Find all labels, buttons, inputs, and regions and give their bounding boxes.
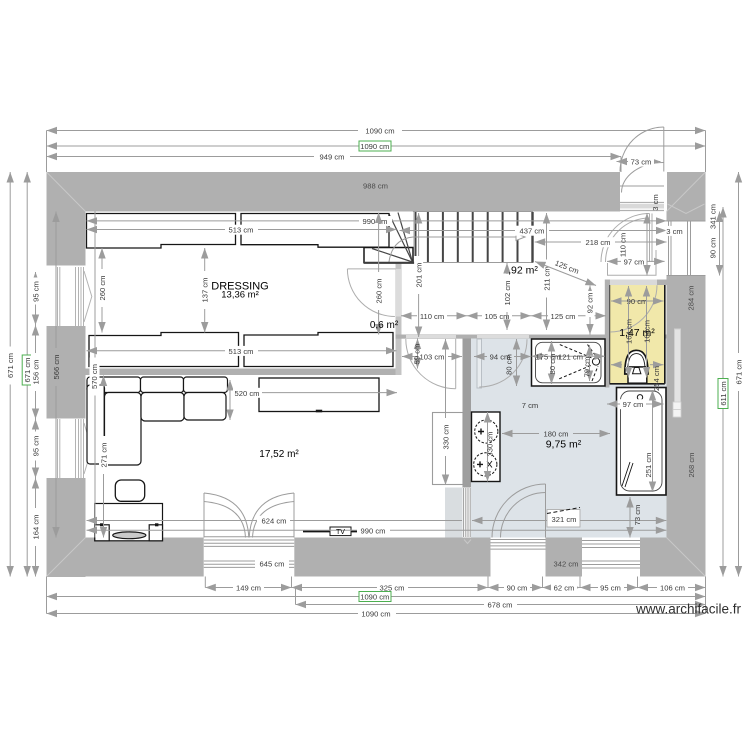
svg-text:TV: TV xyxy=(336,529,345,536)
svg-text:268 cm: 268 cm xyxy=(687,453,696,478)
svg-text:671 cm: 671 cm xyxy=(735,360,744,385)
svg-text:988 cm: 988 cm xyxy=(363,182,388,191)
svg-text:284 cm: 284 cm xyxy=(687,286,696,311)
svg-text:3 cm: 3 cm xyxy=(666,227,682,236)
svg-text:513 cm: 513 cm xyxy=(229,347,254,356)
svg-text:271 cm: 271 cm xyxy=(100,443,109,468)
svg-text:251 cm: 251 cm xyxy=(644,453,653,478)
svg-text:437 cm: 437 cm xyxy=(520,227,545,236)
svg-text:156 cm: 156 cm xyxy=(32,360,41,385)
svg-text:0,6 m²: 0,6 m² xyxy=(370,320,399,331)
svg-text:330 cm: 330 cm xyxy=(486,432,495,457)
svg-text:949 cm: 949 cm xyxy=(320,153,345,162)
svg-text:260 cm: 260 cm xyxy=(375,279,384,304)
svg-text:17,52 m²: 17,52 m² xyxy=(259,449,299,460)
svg-text:95 cm: 95 cm xyxy=(32,281,41,302)
svg-text:102 cm: 102 cm xyxy=(503,281,512,306)
svg-text:1090 cm: 1090 cm xyxy=(360,142,389,151)
svg-text:97 cm: 97 cm xyxy=(623,400,644,409)
svg-text:7 cm: 7 cm xyxy=(522,401,538,410)
svg-text:260 cm: 260 cm xyxy=(98,276,107,301)
svg-text:624 cm: 624 cm xyxy=(262,517,287,526)
svg-text:www.archifacile.fr: www.archifacile.fr xyxy=(635,602,742,617)
svg-text:95 cm: 95 cm xyxy=(32,436,41,457)
svg-text:164 cm: 164 cm xyxy=(32,515,41,540)
svg-text:95 cm: 95 cm xyxy=(600,584,621,593)
svg-text:520 cm: 520 cm xyxy=(235,389,260,398)
svg-text:201 cm: 201 cm xyxy=(415,263,424,288)
svg-text:645 cm: 645 cm xyxy=(260,560,285,569)
svg-text:62 cm: 62 cm xyxy=(554,584,575,593)
svg-text:79 cm: 79 cm xyxy=(583,357,592,378)
svg-text:149 cm: 149 cm xyxy=(236,584,261,593)
svg-text:80 cm: 80 cm xyxy=(505,354,514,375)
svg-text:9,75 m²: 9,75 m² xyxy=(546,439,582,451)
svg-text:566 cm: 566 cm xyxy=(52,355,61,380)
svg-text:137 cm: 137 cm xyxy=(201,278,210,303)
svg-text:218 cm: 218 cm xyxy=(586,238,611,247)
svg-text:1090 cm: 1090 cm xyxy=(360,593,389,602)
svg-text:110 cm: 110 cm xyxy=(420,312,444,321)
svg-text:73 cm: 73 cm xyxy=(633,505,642,526)
svg-text:92 cm: 92 cm xyxy=(586,293,595,314)
svg-text:211 cm: 211 cm xyxy=(543,266,552,290)
svg-text:59 cm: 59 cm xyxy=(413,344,422,365)
svg-text:3 cm: 3 cm xyxy=(651,194,660,210)
svg-text:570 cm: 570 cm xyxy=(90,364,99,389)
svg-text:254 cm: 254 cm xyxy=(652,366,661,391)
svg-text:678 cm: 678 cm xyxy=(488,601,513,610)
svg-text:110 cm: 110 cm xyxy=(619,233,628,257)
svg-text:90 cm: 90 cm xyxy=(627,297,648,306)
svg-text:,92 m²: ,92 m² xyxy=(508,265,538,277)
svg-text:90 cm: 90 cm xyxy=(709,238,718,259)
svg-text:97 cm: 97 cm xyxy=(624,258,645,267)
svg-text:80 cm: 80 cm xyxy=(548,354,557,375)
svg-text:341 cm: 341 cm xyxy=(709,204,718,229)
svg-text:342 cm: 342 cm xyxy=(554,560,579,569)
svg-text:180 cm: 180 cm xyxy=(544,430,569,439)
svg-text:106 cm: 106 cm xyxy=(660,584,685,593)
svg-text:90 cm: 90 cm xyxy=(507,584,528,593)
svg-text:1,47 m²: 1,47 m² xyxy=(619,327,655,339)
svg-text:611 cm: 611 cm xyxy=(719,381,728,405)
svg-text:103 cm: 103 cm xyxy=(420,353,445,362)
svg-text:1090 cm: 1090 cm xyxy=(365,127,394,136)
svg-text:330 cm: 330 cm xyxy=(442,425,451,450)
svg-text:125 cm: 125 cm xyxy=(551,312,576,321)
svg-text:990 cm: 990 cm xyxy=(361,526,386,535)
svg-text:121 cm: 121 cm xyxy=(558,352,583,361)
svg-text:321 cm: 321 cm xyxy=(552,515,577,524)
svg-text:1090 cm: 1090 cm xyxy=(361,610,390,619)
svg-text:671 cm: 671 cm xyxy=(6,353,15,378)
svg-text:73 cm: 73 cm xyxy=(631,158,652,167)
svg-text:990 cm: 990 cm xyxy=(363,217,388,226)
svg-text:513 cm: 513 cm xyxy=(229,226,254,235)
svg-text:13,36 m²: 13,36 m² xyxy=(221,290,259,301)
